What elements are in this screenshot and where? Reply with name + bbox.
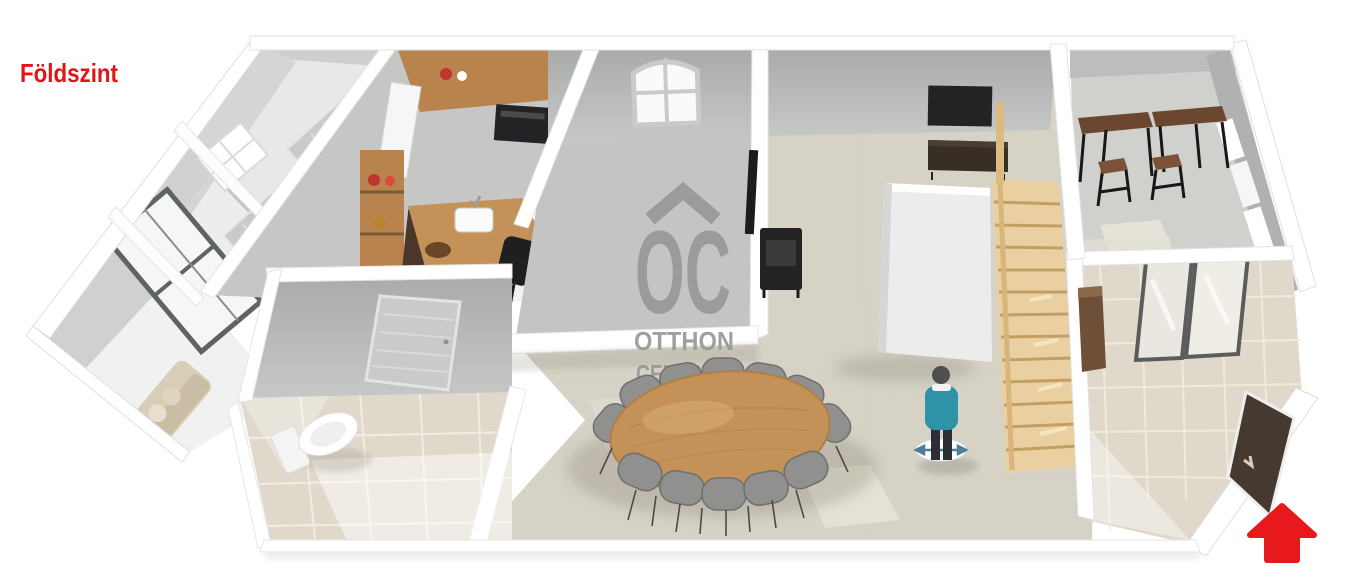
living-north-wall (762, 48, 1056, 136)
upper-shelf (430, 60, 476, 94)
bread-board (425, 242, 451, 258)
north-exterior-wall-top (250, 36, 1234, 50)
tv-screen (928, 85, 993, 126)
red-cup (440, 68, 452, 80)
dining-chair (702, 478, 746, 510)
kitchen-sink (455, 208, 493, 232)
entry-cabinet (1078, 286, 1106, 372)
jar (374, 216, 386, 228)
person-torso (925, 386, 958, 430)
arched-window (633, 57, 699, 125)
sliding-glass-door (1136, 256, 1248, 360)
bathroom (228, 264, 526, 552)
floorplan-canvas: OC OTTHON CENTRUM (0, 0, 1368, 575)
stove-door (766, 240, 796, 266)
watermark-monogram: OC (635, 207, 731, 339)
partition-wall (878, 183, 992, 362)
person-collar (932, 384, 951, 391)
person-head (932, 366, 950, 384)
oven (494, 104, 550, 144)
red-cup (385, 176, 395, 186)
floor-label: Földszint (20, 58, 118, 88)
bowl (457, 71, 467, 81)
watermark-line1: OTTHON (634, 326, 734, 356)
floorplan-screenshot: OC OTTHON CENTRUM (0, 0, 1368, 575)
bathroom-door (366, 296, 460, 390)
stair-post (996, 102, 1004, 184)
red-cup (368, 174, 380, 186)
door-knob (444, 340, 449, 345)
south-exterior-wall-top (260, 540, 1200, 552)
